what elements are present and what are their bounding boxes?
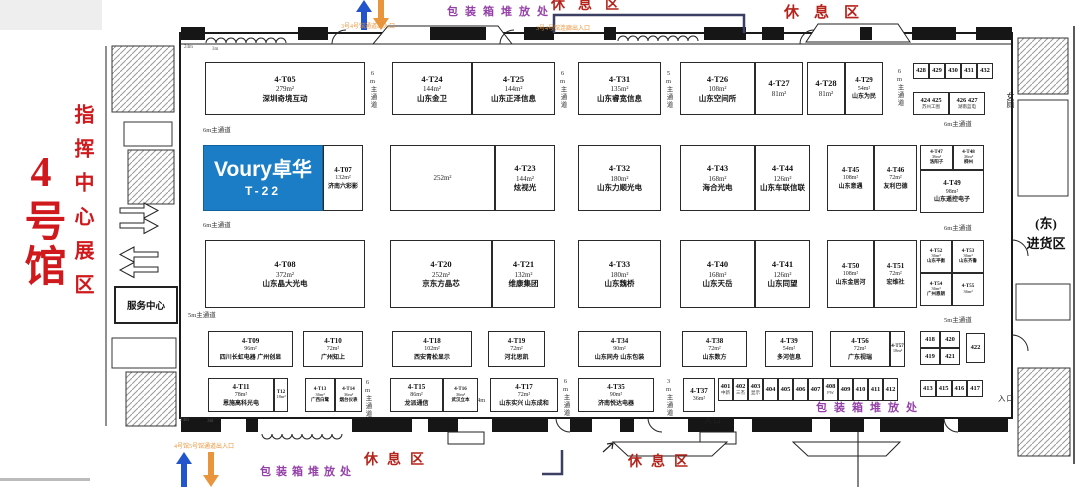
booth-name: 京东方晶芯 <box>421 280 461 289</box>
booth-area: 132m² <box>335 175 350 182</box>
exterior-area <box>0 0 102 30</box>
booth-name: 山东魏桥 <box>604 280 636 289</box>
booth-name: 四川长虹电器 广州创显 <box>219 355 283 362</box>
booth-408: 408PW <box>823 378 838 401</box>
hall-title: 4号馆 <box>20 150 62 289</box>
booth-4-T29: 4-T2954m²山东为民 <box>845 62 883 115</box>
booth-code: 418 <box>925 336 935 343</box>
booth-area: 78m² <box>235 392 247 399</box>
booth-code: 4-T26 <box>707 74 728 85</box>
booth-4-T20: 4-T20252m²京东方晶芯 <box>390 240 492 308</box>
booth-432: 432 <box>977 63 993 79</box>
booth-code: 407 <box>811 386 821 393</box>
booth-407: 407 <box>808 378 823 401</box>
booth-411: 411 <box>868 378 883 401</box>
booth-code: 419 <box>925 353 935 360</box>
booth-4-T10: 4-T1072m²广州知上 <box>303 331 363 367</box>
booth-sub-label: 湖南蓝电 <box>958 105 976 110</box>
booth-name: 河北思凯 <box>503 355 529 362</box>
aisle-label: 4m <box>477 397 485 404</box>
booth-code: 4-T41 <box>772 259 793 270</box>
booth-cluster: 401中新402三杰403显示404405406407408PW40941041… <box>718 378 898 401</box>
direction-arrows-icon <box>120 203 158 278</box>
booth-code: 4-T08 <box>274 259 295 270</box>
booth-code: 411 <box>871 386 880 393</box>
booth-area: 252m² <box>433 174 451 182</box>
booth-4-T44: 4-T44126m²山东车联信联 <box>755 145 810 211</box>
booth-name: 山东天岳 <box>702 280 734 289</box>
booth-code: 4-T43 <box>707 163 728 174</box>
booth-code: 432 <box>980 67 990 74</box>
booth-419: 419 <box>920 348 940 365</box>
rest-area-label: 休息区 <box>628 451 697 471</box>
booth-4-T54: 4-T5436m²广州恩朗 <box>920 273 952 306</box>
booth-area: 132m² <box>514 271 532 279</box>
booth-name: 山东睿宽信息 <box>596 95 643 104</box>
aisle-label: 6m主通道 <box>944 118 972 128</box>
booth-code: 4-T50 <box>842 262 860 271</box>
booth-406: 406 <box>793 378 808 401</box>
booth-code: 4-T56 <box>851 337 869 346</box>
booth-name: 恩施高科光电 <box>222 401 260 408</box>
packing-area-label: 包装箱堆放处 <box>447 3 555 19</box>
booth-name: 山东意遇 <box>837 184 863 191</box>
east-label-line2: 进货区 <box>1018 234 1074 254</box>
booth-code: 4-T11 <box>232 383 249 392</box>
booth-428: 428 <box>913 63 929 79</box>
booth-name: 山东车联信联 <box>759 184 806 193</box>
booth-code: 4-T51 <box>887 262 905 271</box>
booth-area: 81m² <box>819 90 834 98</box>
booth-name: 烟台仪表 <box>339 398 359 403</box>
east-label-line1: (东) <box>1018 214 1074 234</box>
booth-name: 广州恩朗 <box>926 292 946 297</box>
voury-brand-cjk: 卓华 <box>272 160 312 180</box>
booth-area: 96m² <box>244 346 256 353</box>
booth-sub-label: 中新 <box>721 391 730 396</box>
booth-4-T46: 4-T4672m²友利巴德 <box>874 145 917 211</box>
booth-415: 415 <box>936 380 952 397</box>
booth-area: 108m² <box>843 175 858 182</box>
booth-4-T09: 4-T0996m²四川长虹电器 广州创显 <box>208 331 293 367</box>
booth-area: 86m² <box>410 392 422 399</box>
corridor-entrance-label: 3号4号馆连廊出入口 <box>536 23 590 32</box>
booth-424-425: 424 425苏州工图 <box>913 92 949 115</box>
booth-code: 4-T21 <box>513 259 534 270</box>
east-loading-area-label: (东) 进货区 <box>1018 214 1074 253</box>
booth-name: 山东遥控电子 <box>933 197 971 204</box>
north-west-arrow-icon <box>603 443 613 452</box>
booth-413: 413 <box>920 380 936 397</box>
booth-code: 4-T20 <box>430 259 451 270</box>
booth-sub-label: 三杰 <box>736 391 745 396</box>
aisle-label: 6m主通道 <box>557 70 567 109</box>
booth-code: 4-T24 <box>421 74 442 85</box>
booth-4-T49: 4-T4998m²山东遥控电子 <box>920 170 984 213</box>
aisle-label: 3m主通道 <box>663 378 673 417</box>
aisle-label: 6m主通道 <box>560 378 570 417</box>
booth-code: 406 <box>796 386 806 393</box>
aisle-label: 6m主通道 <box>944 222 972 232</box>
down-arrow-icon <box>203 452 219 487</box>
booth-name: 济南六彩影 <box>327 184 359 191</box>
booth-code: 422 <box>971 344 981 351</box>
bottom-wall <box>181 419 1008 432</box>
booth-430: 430 <box>945 63 961 79</box>
booth-code: 421 <box>945 353 955 360</box>
booth-429: 429 <box>929 63 945 79</box>
restroom-label: 女厕 <box>1005 92 1016 108</box>
entrance-label: 入口 <box>704 415 723 426</box>
booth-4-T57: 4-T5718m² <box>890 331 905 367</box>
booth-code: 415 <box>939 385 949 392</box>
voury-booth-code: T-22 <box>245 184 281 198</box>
booth-area: 72m² <box>708 346 720 353</box>
booth-code: 4-T44 <box>772 163 793 174</box>
featured-booth-voury: Voury 卓华 T-22 <box>203 145 323 211</box>
booth-code: 4-T28 <box>815 78 836 89</box>
booth-sub-label: 显示 <box>751 391 760 396</box>
booth-420: 420 <box>940 331 960 348</box>
booth-name: 洛阳子 <box>929 160 945 165</box>
booth-4-T37: 4-T3736m² <box>683 378 715 412</box>
booth-code: 4-T40 <box>707 259 728 270</box>
booth-4-T08: 4-T08372m²山东晶大光电 <box>205 240 365 308</box>
booth-cluster: 413415416417 <box>920 380 983 397</box>
booth-code: 4-T23 <box>514 163 535 174</box>
booth-name: 山东金居河 <box>834 280 866 287</box>
booth-code: 413 <box>923 385 933 392</box>
booth-417: 417 <box>967 380 983 397</box>
booth-cluster: 428429430431432 <box>913 63 993 79</box>
booth-name: 山东同望 <box>767 280 799 289</box>
booth-area: 54m² <box>783 346 795 353</box>
rest-area-label: 休息区 <box>551 0 632 14</box>
booth-name: 广州知上 <box>320 355 346 362</box>
booth-area: 279m² <box>276 85 294 93</box>
aisle-label: 5m主通道 <box>944 314 972 324</box>
booth-name: 武汉立本 <box>451 398 471 403</box>
booth-code: 4-T25 <box>503 74 524 85</box>
booth-4-T51: 4-T5172m²宏维社 <box>874 240 917 308</box>
booth-unlabeled: 252m² <box>390 145 495 211</box>
booth-area: 372m² <box>276 271 294 279</box>
voury-logo: Voury 卓华 <box>214 159 312 180</box>
booth-code: 4-T07 <box>334 166 352 175</box>
up-arrow-icon <box>176 452 192 487</box>
corridor-entrance-label: 3号4号馆通道出入口 <box>341 21 395 30</box>
booth-4-T21: 4-T21132m²维康集团 <box>492 240 555 308</box>
booth-4-T41: 4-T41126m²山东同望 <box>755 240 810 308</box>
booth-4-T43: 4-T43168m²海合光电 <box>680 145 755 211</box>
booth-code: 4-T33 <box>609 259 630 270</box>
booth-sub-label: PW <box>827 391 834 396</box>
booth-name: 西安青松显示 <box>413 355 451 362</box>
booth-area: 36m² <box>693 396 705 403</box>
booth-404: 404 <box>763 378 778 401</box>
booth-code: 4-T27 <box>768 78 789 89</box>
booth-code: 4-T29 <box>855 76 873 85</box>
dimension-label: 24m <box>184 45 193 50</box>
booth-418: 418 <box>920 331 940 348</box>
booth-4-T34: 4-T3490m²山东同舟 山东包装 <box>578 331 661 367</box>
booth-name: 山东齐鲁 <box>958 259 978 264</box>
booth-code: 417 <box>970 385 980 392</box>
booth-cluster: 422 <box>966 333 985 363</box>
booth-4-T15: 4-T1586m²龙派通信 <box>390 378 443 412</box>
booth-name: 山东为民 <box>851 94 877 101</box>
booth-name: 广东视瑞 <box>847 355 873 362</box>
booth-name: 广西白鹭 <box>310 398 330 403</box>
aisle-label: 6m主通道 <box>203 124 231 134</box>
booth-name: 山东数方 <box>701 355 727 362</box>
booth-code: 4-T18 <box>423 337 441 346</box>
booth-421: 421 <box>940 348 960 365</box>
booth-area: 90m² <box>610 392 622 399</box>
booth-T12: T1218m² <box>274 378 288 412</box>
booth-area: 135m² <box>610 85 628 93</box>
booth-area: 126m² <box>773 175 791 183</box>
booth-code: 4-T15 <box>408 383 426 392</box>
booth-code: 416 <box>955 385 965 392</box>
aisle-label: 5m主通道 <box>663 70 673 109</box>
booth-416: 416 <box>952 380 968 397</box>
booth-412: 412 <box>883 378 898 401</box>
booth-name: 山东正泽信息 <box>490 95 537 104</box>
booth-sub-label: 苏州工图 <box>922 105 940 110</box>
booth-name: 山东力顺光电 <box>596 184 643 193</box>
booth-area: 98m² <box>946 189 958 196</box>
booth-area: 168m² <box>708 271 726 279</box>
booth-area: 108m² <box>708 85 726 93</box>
booth-name: 柳州 <box>963 160 974 165</box>
booth-area: 72m² <box>327 346 339 353</box>
booth-area: 72m² <box>854 346 866 353</box>
booth-name: 山东晶大光电 <box>262 280 309 289</box>
exhibition-hall-floor-plan: 4号馆 指挥中心展区 服务中心 (东) 进货区 女厕 Voury 卓华 T-22… <box>0 0 1080 487</box>
booth-area: 72m² <box>889 175 901 182</box>
booth-4-T39: 4-T3954m²多河信息 <box>765 331 813 367</box>
booth-code: 4-T17 <box>515 383 533 392</box>
booth-name: 济南悦达电器 <box>597 401 635 408</box>
booth-4-T16: 4-T1636m²武汉立本 <box>443 378 478 412</box>
booth-code: 4-T31 <box>609 74 630 85</box>
booth-410: 410 <box>853 378 868 401</box>
booth-422: 422 <box>966 333 985 363</box>
booth-area: 144m² <box>516 175 534 183</box>
booth-4-T55: 4-T5536m² <box>952 273 984 306</box>
zone-title: 指挥中心展区 <box>72 104 92 308</box>
booth-code: 4-T35 <box>607 383 625 392</box>
booth-area: 180m² <box>610 175 628 183</box>
aisle-label: 6m主通道 <box>203 219 231 229</box>
booth-4-T28: 4-T2881m² <box>807 62 845 115</box>
rest-area-label: 休息区 <box>364 449 433 469</box>
booth-4-T53: 4-T5336m²山东齐鲁 <box>952 240 984 273</box>
aisle-label: 6m主通道 <box>894 68 904 107</box>
booth-4-T27: 4-T2781m² <box>755 62 803 115</box>
booth-code: 428 <box>916 67 926 74</box>
booth-code: 4-T49 <box>943 179 961 188</box>
booth-4-T50: 4-T50108m²山东金居河 <box>827 240 874 308</box>
dimension-label: 3m <box>207 419 213 424</box>
booth-name: 多河信息 <box>776 355 802 362</box>
booth-area: 126m² <box>773 271 791 279</box>
booth-4-T52: 4-T5236m²山东平衡 <box>920 240 952 273</box>
booth-4-T11: 4-T1178m²恩施高科光电 <box>208 378 274 412</box>
booth-code: 4-T09 <box>242 337 260 346</box>
booth-name: 宏维社 <box>885 280 905 287</box>
booth-area: 72m² <box>518 392 530 399</box>
booth-area: 18m² <box>893 349 902 354</box>
booth-name: 炫视光 <box>513 184 538 193</box>
booth-4-T38: 4-T3872m²山东数方 <box>682 331 747 367</box>
booth-code: 410 <box>856 386 866 393</box>
booth-area: 18m² <box>276 395 285 400</box>
booth-409: 409 <box>838 378 853 401</box>
booth-code: 430 <box>948 67 958 74</box>
booth-code: 405 <box>781 386 791 393</box>
booth-code: 4-T34 <box>611 337 629 346</box>
bottom-entrance-arrows <box>176 452 219 487</box>
booth-area: 72m² <box>510 346 522 353</box>
booth-code: 4-T05 <box>274 74 295 85</box>
booth-4-T47: 4-T4736m²洛阳子 <box>920 145 953 170</box>
booth-code: 4-T46 <box>887 166 905 175</box>
booth-code: 4-T38 <box>706 337 724 346</box>
booth-code: 4-T45 <box>842 166 860 175</box>
booth-code: 420 <box>945 336 955 343</box>
booth-code: 4-T10 <box>324 337 342 346</box>
booth-name: 山东金卫 <box>416 95 448 104</box>
booth-405: 405 <box>778 378 793 401</box>
rest-area-label: 休息区 <box>784 1 874 22</box>
booth-4-T35: 4-T3590m²济南悦达电器 <box>578 378 654 412</box>
booth-name: 龙派通信 <box>403 401 429 408</box>
booth-area: 72m² <box>889 271 901 278</box>
booth-4-T13: 4-T1336m²广西白鹭 <box>305 378 335 412</box>
booth-4-T26: 4-T26108m²山东空间所 <box>680 62 755 115</box>
booth-4-T32: 4-T32180m²山东力顺光电 <box>578 145 661 211</box>
booth-cluster: 418420419421 <box>920 331 960 365</box>
booth-area: 144m² <box>504 85 522 93</box>
service-center: 服务中心 <box>114 286 178 324</box>
booth-name: 山东实兴 山东成和 <box>498 401 550 408</box>
left-structures <box>106 46 176 426</box>
booth-431: 431 <box>961 63 977 79</box>
booth-4-T17: 4-T1772m²山东实兴 山东成和 <box>490 378 558 412</box>
aisle-label: 6m主通道 <box>362 379 372 418</box>
booth-area: 90m² <box>613 346 625 353</box>
booth-code: 4-T37 <box>690 387 708 396</box>
aisle-label: 6m主通道 <box>367 70 377 109</box>
booth-4-T14: 4-T1436m²烟台仪表 <box>335 378 362 412</box>
booth-area: 102m² <box>424 346 439 353</box>
aisle-label: 5m主通道 <box>188 309 216 319</box>
dimension-label: 24m <box>180 418 189 423</box>
booth-area: 252m² <box>432 271 450 279</box>
booth-401: 401中新 <box>718 378 733 401</box>
booth-name: 深圳奇境互动 <box>262 95 309 104</box>
booth-area: 180m² <box>610 271 628 279</box>
booth-name: 维康集团 <box>508 280 540 289</box>
booth-4-T07: 4-T07132m²济南六彩影 <box>323 145 363 211</box>
entrance-label: 入口 <box>998 393 1015 404</box>
booth-4-T45: 4-T45108m²山东意遇 <box>827 145 874 211</box>
booth-4-T48: 4-T4836m²柳州 <box>953 145 984 170</box>
booth-name: 山东同舟 山东包装 <box>594 355 646 362</box>
booth-code: 404 <box>766 386 776 393</box>
corridor-entrance-label: 4号馆5号馆通道出入口 <box>174 441 234 450</box>
booth-402: 402三杰 <box>733 378 748 401</box>
booth-area: 108m² <box>843 271 858 278</box>
booth-4-T24: 4-T24144m²山东金卫 <box>392 62 472 115</box>
booth-area: 36m² <box>963 290 972 295</box>
booth-4-T25: 4-T25144m²山东正泽信息 <box>472 62 555 115</box>
booth-area: 81m² <box>772 90 787 98</box>
dimension-label: 3m <box>212 47 218 52</box>
booth-code: 4-T32 <box>609 163 630 174</box>
booth-code: 429 <box>932 67 942 74</box>
voury-brand-latin: Voury <box>214 159 272 180</box>
booth-code: 431 <box>964 67 974 74</box>
booth-code: 409 <box>841 386 851 393</box>
booth-area: 144m² <box>423 85 441 93</box>
booth-name: 海合光电 <box>702 184 734 193</box>
booth-4-T19: 4-T1972m²河北思凯 <box>488 331 545 367</box>
booth-4-T33: 4-T33180m²山东魏桥 <box>578 240 661 308</box>
booth-name: 友利巴德 <box>882 184 908 191</box>
booth-cluster: 424 425苏州工图426 427湖南蓝电 <box>913 92 985 115</box>
booth-4-T31: 4-T31135m²山东睿宽信息 <box>578 62 661 115</box>
booth-4-T05: 4-T05279m²深圳奇境互动 <box>205 62 365 115</box>
booth-code: 4-T39 <box>780 337 798 346</box>
booth-4-T23: 4-T23144m²炫视光 <box>495 145 555 211</box>
booth-4-T40: 4-T40168m²山东天岳 <box>680 240 755 308</box>
booth-4-T18: 4-T18102m²西安青松显示 <box>392 331 472 367</box>
booth-area: 54m² <box>858 86 870 93</box>
booth-name: 山东空间所 <box>698 95 738 104</box>
packing-area-label: 包装箱堆放处 <box>816 399 924 415</box>
booth-403: 403显示 <box>748 378 763 401</box>
packing-area-label: 包装箱堆放处 <box>260 463 356 479</box>
booth-4-T56: 4-T5672m²广东视瑞 <box>830 331 890 367</box>
booth-code: 4-T19 <box>508 337 526 346</box>
booth-426-427: 426 427湖南蓝电 <box>949 92 985 115</box>
booth-code: 412 <box>886 386 896 393</box>
booth-name: 山东平衡 <box>926 259 946 264</box>
booth-area: 168m² <box>708 175 726 183</box>
